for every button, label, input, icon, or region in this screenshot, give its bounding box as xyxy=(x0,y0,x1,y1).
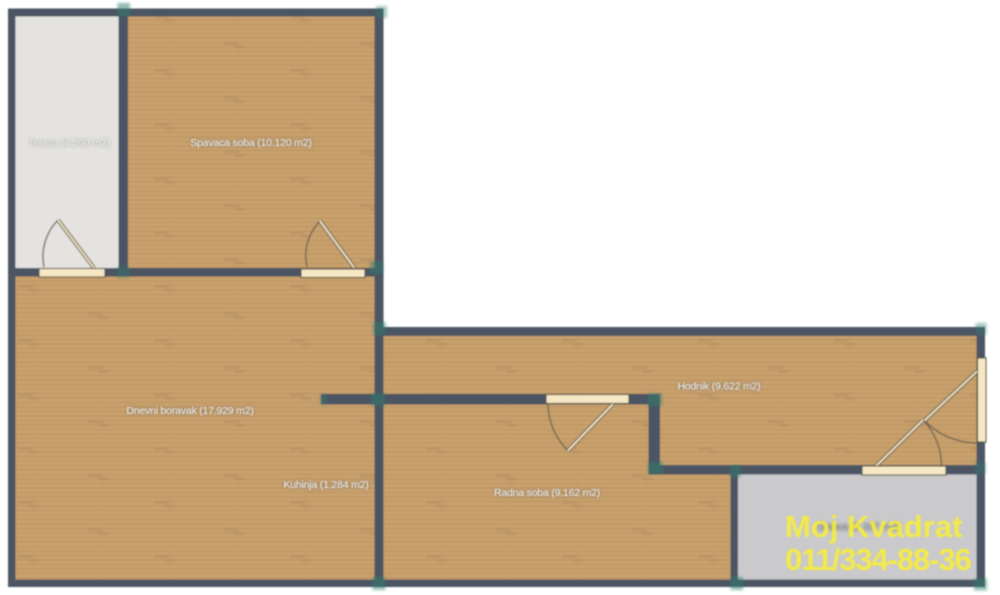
svg-text:Dnevni boravak (17.929 m2): Dnevni boravak (17.929 m2) xyxy=(126,405,253,417)
svg-text:Moj Kvadrat: Moj Kvadrat xyxy=(785,509,962,544)
svg-text:Radna soba (9.162 m2): Radna soba (9.162 m2) xyxy=(494,487,600,499)
svg-text:Terasa (4.260 m2): Terasa (4.260 m2) xyxy=(28,137,110,149)
svg-text:Spavaca soba (10.120 m2): Spavaca soba (10.120 m2) xyxy=(190,137,311,149)
svg-text:Hodnik (9.622 m2): Hodnik (9.622 m2) xyxy=(678,381,761,393)
svg-text:011/334-88-36: 011/334-88-36 xyxy=(785,542,972,577)
svg-text:Kuhinja (1.284 m2): Kuhinja (1.284 m2) xyxy=(283,479,368,491)
